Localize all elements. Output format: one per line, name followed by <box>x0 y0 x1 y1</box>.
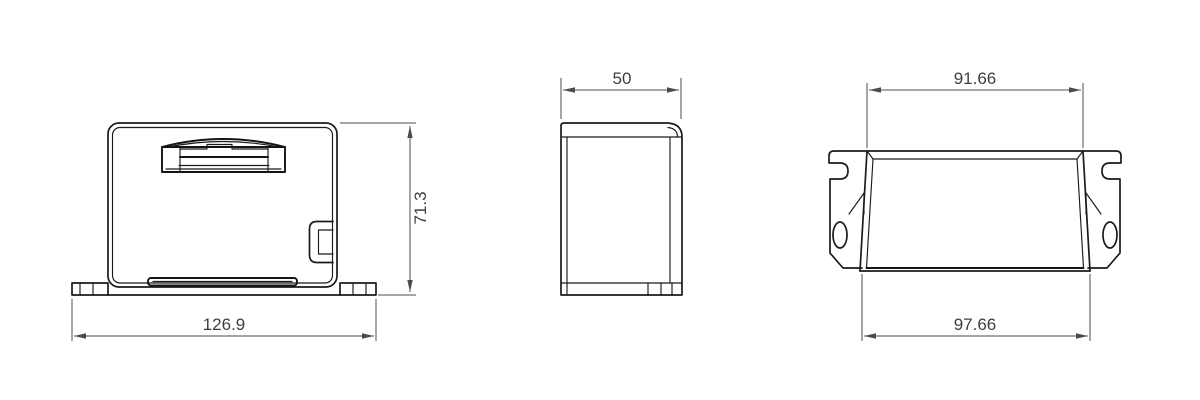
dimension-label-rear-bottom-width: 97.66 <box>954 315 997 334</box>
dimension-rear-bottom-width: 97.66 <box>862 274 1090 341</box>
connector-outer <box>310 222 334 263</box>
front-view: 126.9 71.3 <box>72 123 430 341</box>
connector-cutout <box>310 222 334 263</box>
dimension-side-depth: 50 <box>561 69 681 119</box>
front-body-inner-outline <box>113 128 333 284</box>
rear-wall-left-inner <box>867 159 874 268</box>
bottom-vent-slot <box>148 278 297 286</box>
side-body-outline <box>561 123 682 295</box>
rear-body <box>860 151 1090 271</box>
side-view: 50 <box>561 69 682 295</box>
lid-corner-inner-arc <box>668 128 678 138</box>
dimension-label-side-depth: 50 <box>613 69 632 88</box>
rear-wall-right-inner <box>1077 159 1084 268</box>
tab-left-gusset <box>849 193 864 214</box>
dimension-label-front-width: 126.9 <box>203 315 246 334</box>
dimension-front-height: 71.3 <box>340 123 430 295</box>
card-slot <box>162 139 285 172</box>
rear-view: 91.66 97.66 <box>829 69 1121 341</box>
rear-top-corner-right <box>1077 151 1083 159</box>
dimension-label-front-height: 71.3 <box>411 191 430 224</box>
technical-drawing-canvas: 126.9 71.3 50 <box>0 0 1200 400</box>
dimension-label-rear-top-width: 91.66 <box>954 69 997 88</box>
dimension-rear-top-width: 91.66 <box>867 69 1083 148</box>
card-slot-arc-outer <box>162 139 285 147</box>
tab-right-gusset <box>1086 193 1101 214</box>
enclosure-drawing: 126.9 71.3 50 <box>0 0 1200 400</box>
dimension-front-width: 126.9 <box>72 299 376 341</box>
tab-right-slot-hole <box>1103 222 1117 248</box>
rear-top-corner-left <box>867 151 873 159</box>
mounting-foot-right <box>340 283 376 295</box>
connector-inner <box>319 230 334 254</box>
tab-left-slot-hole <box>833 222 847 248</box>
mounting-foot-left <box>72 283 108 295</box>
